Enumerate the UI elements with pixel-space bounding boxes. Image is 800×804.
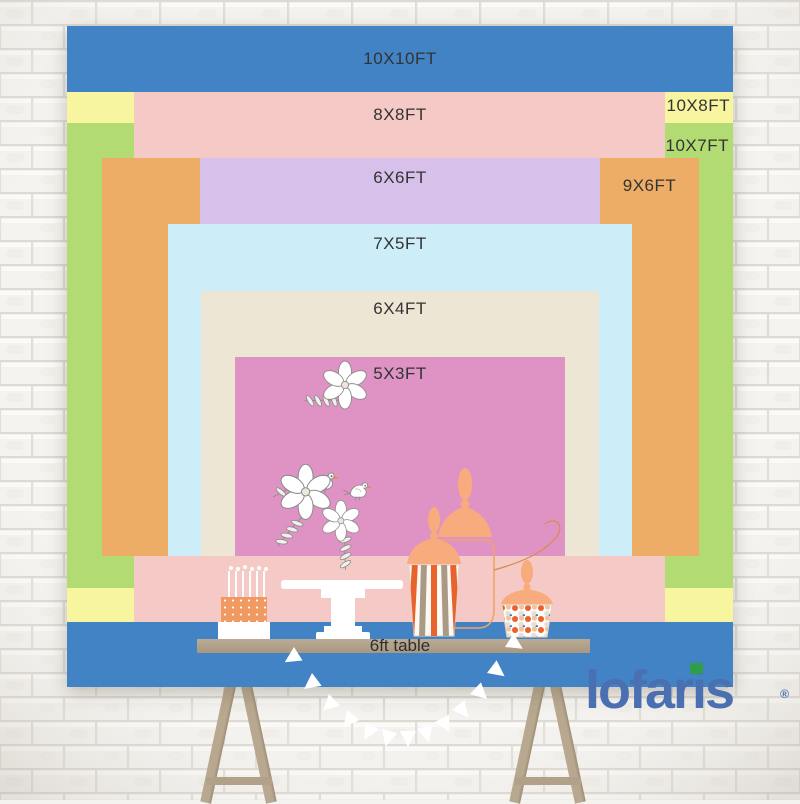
cake-stand-stem (331, 597, 355, 628)
table-crossbar-left (206, 777, 272, 785)
cake-flowers-and-birds-illustration (255, 355, 415, 585)
table-size-label: 6ft table (330, 636, 470, 656)
candy-jar (501, 560, 553, 637)
logo-text-suffix: s (705, 660, 733, 720)
backdrop-size-chart-image: 10X10FT 8X8FT 10X8FT 10X7FT 6X6FT 9X6FT … (0, 0, 800, 800)
candy-jars-illustration (395, 440, 600, 650)
table-crossbar-right (515, 777, 581, 785)
size-label-10x10ft: 10X10FT (67, 49, 733, 69)
size-label-9x6ft: 9X6FT (600, 176, 699, 196)
registered-trademark-icon: ® (780, 664, 789, 724)
logo-text-prefix: lofar (585, 660, 692, 720)
size-label-6x4ft: 6X4FT (67, 299, 733, 319)
logo-letter-i: i (692, 660, 705, 720)
mini-cake-base (218, 622, 270, 640)
lofaris-logo: lofaris ® (585, 660, 797, 726)
size-label-10x8ft: 10X8FT (667, 96, 730, 116)
mini-cake-top (221, 597, 267, 623)
size-label-7x5ft: 7X5FT (67, 234, 733, 254)
size-label-8x8ft: 8X8FT (67, 105, 733, 125)
size-label-10x7ft: 10X7FT (666, 136, 729, 156)
mini-cake-candle-tips (229, 566, 233, 570)
logo-green-square-icon (690, 662, 704, 674)
